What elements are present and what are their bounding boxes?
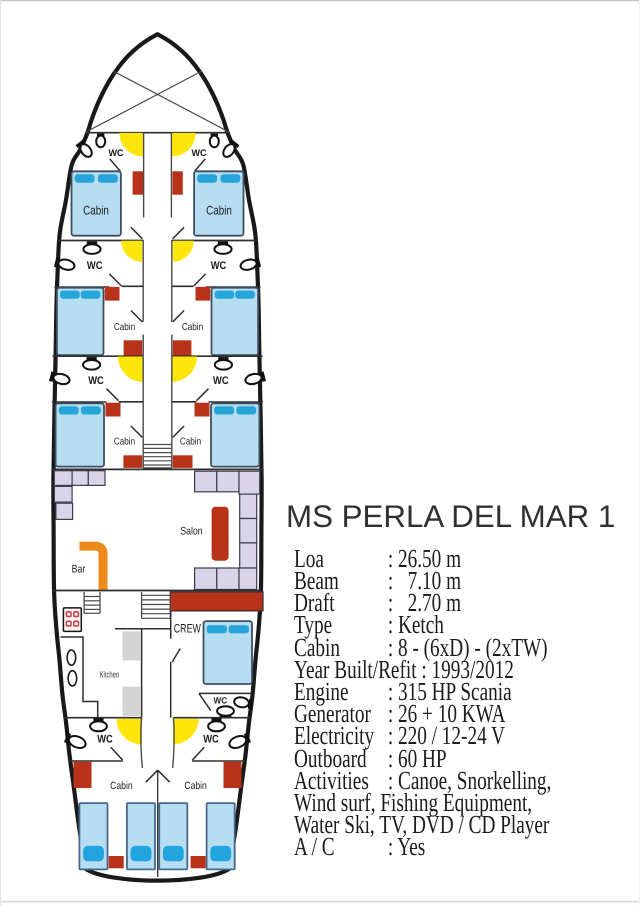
svg-text:WC: WC <box>191 148 206 159</box>
svg-text:Cabin: Cabin <box>206 204 232 218</box>
svg-text:WC: WC <box>203 734 219 746</box>
svg-text:Cabin: Cabin <box>114 436 135 447</box>
svg-text:Cabin: Cabin <box>184 780 207 792</box>
svg-text:WC: WC <box>97 734 113 746</box>
svg-text:Cabin: Cabin <box>182 322 203 333</box>
svg-text:CREW: CREW <box>174 622 201 636</box>
svg-text:WC: WC <box>211 260 227 272</box>
svg-text:Cabin: Cabin <box>180 436 201 447</box>
svg-text:Cabin: Cabin <box>114 322 135 333</box>
svg-text:Kitchen: Kitchen <box>100 669 120 679</box>
svg-text:Cabin: Cabin <box>110 780 133 792</box>
svg-text:Cabin: Cabin <box>83 204 109 218</box>
svg-text:Salon: Salon <box>180 526 202 538</box>
svg-text:WC: WC <box>87 260 103 272</box>
svg-text:WC: WC <box>108 148 123 159</box>
svg-text:Bar: Bar <box>72 564 86 576</box>
svg-text:WC: WC <box>214 695 228 705</box>
svg-text:WC: WC <box>88 375 104 387</box>
svg-text:WC: WC <box>213 375 229 387</box>
